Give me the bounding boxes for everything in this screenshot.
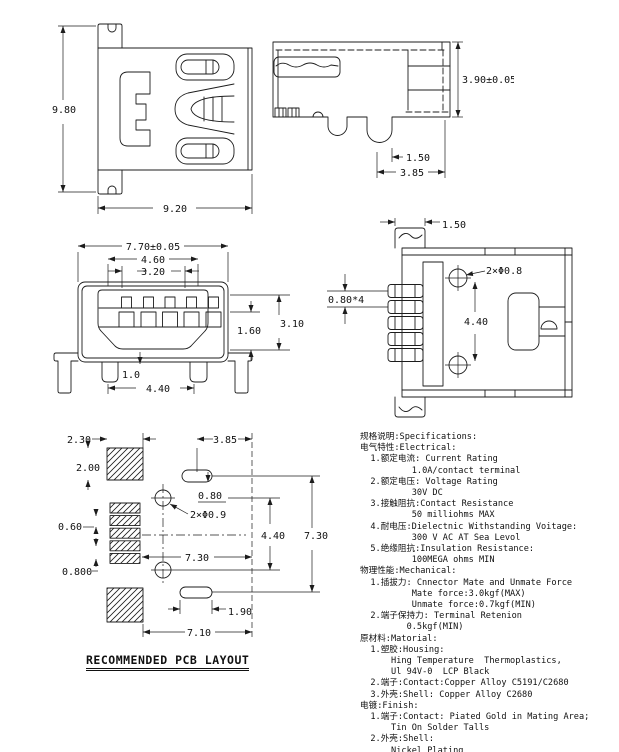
spec-line: 1.0A/contact terminal — [360, 466, 618, 477]
top-view-drawing: 9.80 9.20 — [28, 16, 263, 222]
spec-line: 规格说明:Specifications: — [360, 432, 618, 443]
dim-label-pcb-slot-x: 3.85 — [213, 435, 237, 446]
spec-line: 3.接触阻抗:Contact Resistance — [360, 499, 618, 510]
spec-block: 规格说明:Specifications:电气特性:Electrical: 1.额… — [360, 432, 618, 752]
pcb-layout-caption: RECOMMENDED PCB LAYOUT — [86, 653, 249, 671]
dim-label-front-width: 7.70±0.05 — [126, 242, 180, 253]
spec-line: 50 milliohms MAX — [360, 510, 618, 521]
spec-line: 2.外壳:Shell: — [360, 734, 618, 745]
dim-label-side-lead: 1.50 — [406, 153, 430, 164]
spec-line: 1.端子:Contact: Piated Gold in Mating Area… — [360, 712, 618, 723]
spec-line: 300 V AC AT Sea Levol — [360, 533, 618, 544]
spec-line: Ul 94V-0 LCP Black — [360, 667, 618, 678]
spec-line: Tin On Solder Talls — [360, 723, 618, 734]
dim-label-pcb-slot-drop: 0.80 — [198, 491, 222, 502]
dim-label-top-height: 9.80 — [52, 105, 76, 116]
engineering-drawing-sheet: 9.80 9.20 — [0, 0, 619, 752]
dim-label-pcb-pad-h: 0.60 — [58, 522, 82, 533]
spec-line: 2.端子:Contact:Copper Alloy C5191/C2680 — [360, 678, 618, 689]
spec-line: 100MEGA ohms MIN — [360, 555, 618, 566]
dim-label-pcb-pitch: 0.800 — [62, 567, 92, 578]
pcb-layout-drawing: 2.30 2.00 3.85 0.80 0.60 2×Φ0.9 4.40 7.3… — [28, 428, 360, 654]
dim-label-pcb-outer-span: 7.30 — [304, 531, 328, 542]
dim-label-pcb-inner-span: 7.30 — [185, 553, 209, 564]
spec-line: Mate force:3.0kgf(MAX) — [360, 589, 618, 600]
dim-label-front-leg-width: 1.0 — [122, 370, 140, 381]
front-view-drawing: 7.70±0.05 4.60 3.20 1.60 3.10 1.0 4.40 — [42, 228, 319, 406]
dim-label-pcb-total-width: 7.10 — [187, 628, 211, 639]
spec-line: 5.绝缘阻抗:Insulation Resistance: — [360, 544, 618, 555]
dim-label-front-slot-width: 3.20 — [141, 267, 165, 278]
spec-line: 3.外壳:Shell: Copper Alloy C2680 — [360, 690, 618, 701]
side-view-drawing: 3.90±0.05 1.50 3.85 — [256, 20, 514, 200]
spec-line: 1.插拔力: Cnnector Mate and Unmate Force — [360, 578, 618, 589]
spec-line: 物理性能:Mechanical: — [360, 566, 618, 577]
spec-line: 0.5kgf(MIN) — [360, 622, 618, 633]
spec-line: 电气特性:Electrical: — [360, 443, 618, 454]
dim-label-front-slot-height: 1.60 — [237, 326, 261, 337]
dim-label-pcb-holes: 2×Φ0.9 — [190, 510, 226, 521]
dim-label-front-cavity-height: 3.10 — [280, 319, 304, 330]
spec-line: 电镀:Finish: — [360, 701, 618, 712]
spec-line: Nickel Plating — [360, 746, 618, 752]
spec-line: 2.端子保持力: Terminal Retenion — [360, 611, 618, 622]
dim-label-pcb-pad-width: 2.30 — [67, 435, 91, 446]
spec-line: 1.塑胶:Housing: — [360, 645, 618, 656]
spec-line: Unmate force:0.7kgf(MIN) — [360, 600, 618, 611]
dim-label-top-width: 9.20 — [163, 204, 187, 215]
bottom-view-drawing: 1.50 2×Φ0.8 0.80*4 4.40 — [325, 200, 619, 424]
spec-line: 4.耐电压:Dielectnic Withstanding Voitage: — [360, 522, 618, 533]
spec-line: 原材料:Matorial: — [360, 634, 618, 645]
dim-label-bottom-tab: 1.50 — [442, 220, 466, 231]
dim-label-front-shroud: 4.60 — [141, 255, 165, 266]
dim-label-side-height: 3.90±0.05 — [462, 75, 514, 86]
spec-line: 1.额定电流: Current Rating — [360, 454, 618, 465]
dim-label-front-leg-span: 4.40 — [146, 384, 170, 395]
dim-label-bottom-pitch: 0.80*4 — [328, 295, 364, 306]
spec-line: 2.额定电压: Voltage Rating — [360, 477, 618, 488]
dim-label-bottom-hole-span: 4.40 — [464, 317, 488, 328]
dim-label-pcb-hole-span: 4.40 — [261, 531, 285, 542]
spec-line: 30V DC — [360, 488, 618, 499]
dim-label-side-depth: 3.85 — [400, 168, 424, 179]
dim-label-pcb-slot-width: 1.90 — [228, 607, 252, 618]
dim-label-bottom-holes: 2×Φ0.8 — [486, 266, 522, 277]
dim-label-pcb-pad-height: 2.00 — [76, 463, 100, 474]
spec-line: Hing Temperature Thermoplastics, — [360, 656, 618, 667]
